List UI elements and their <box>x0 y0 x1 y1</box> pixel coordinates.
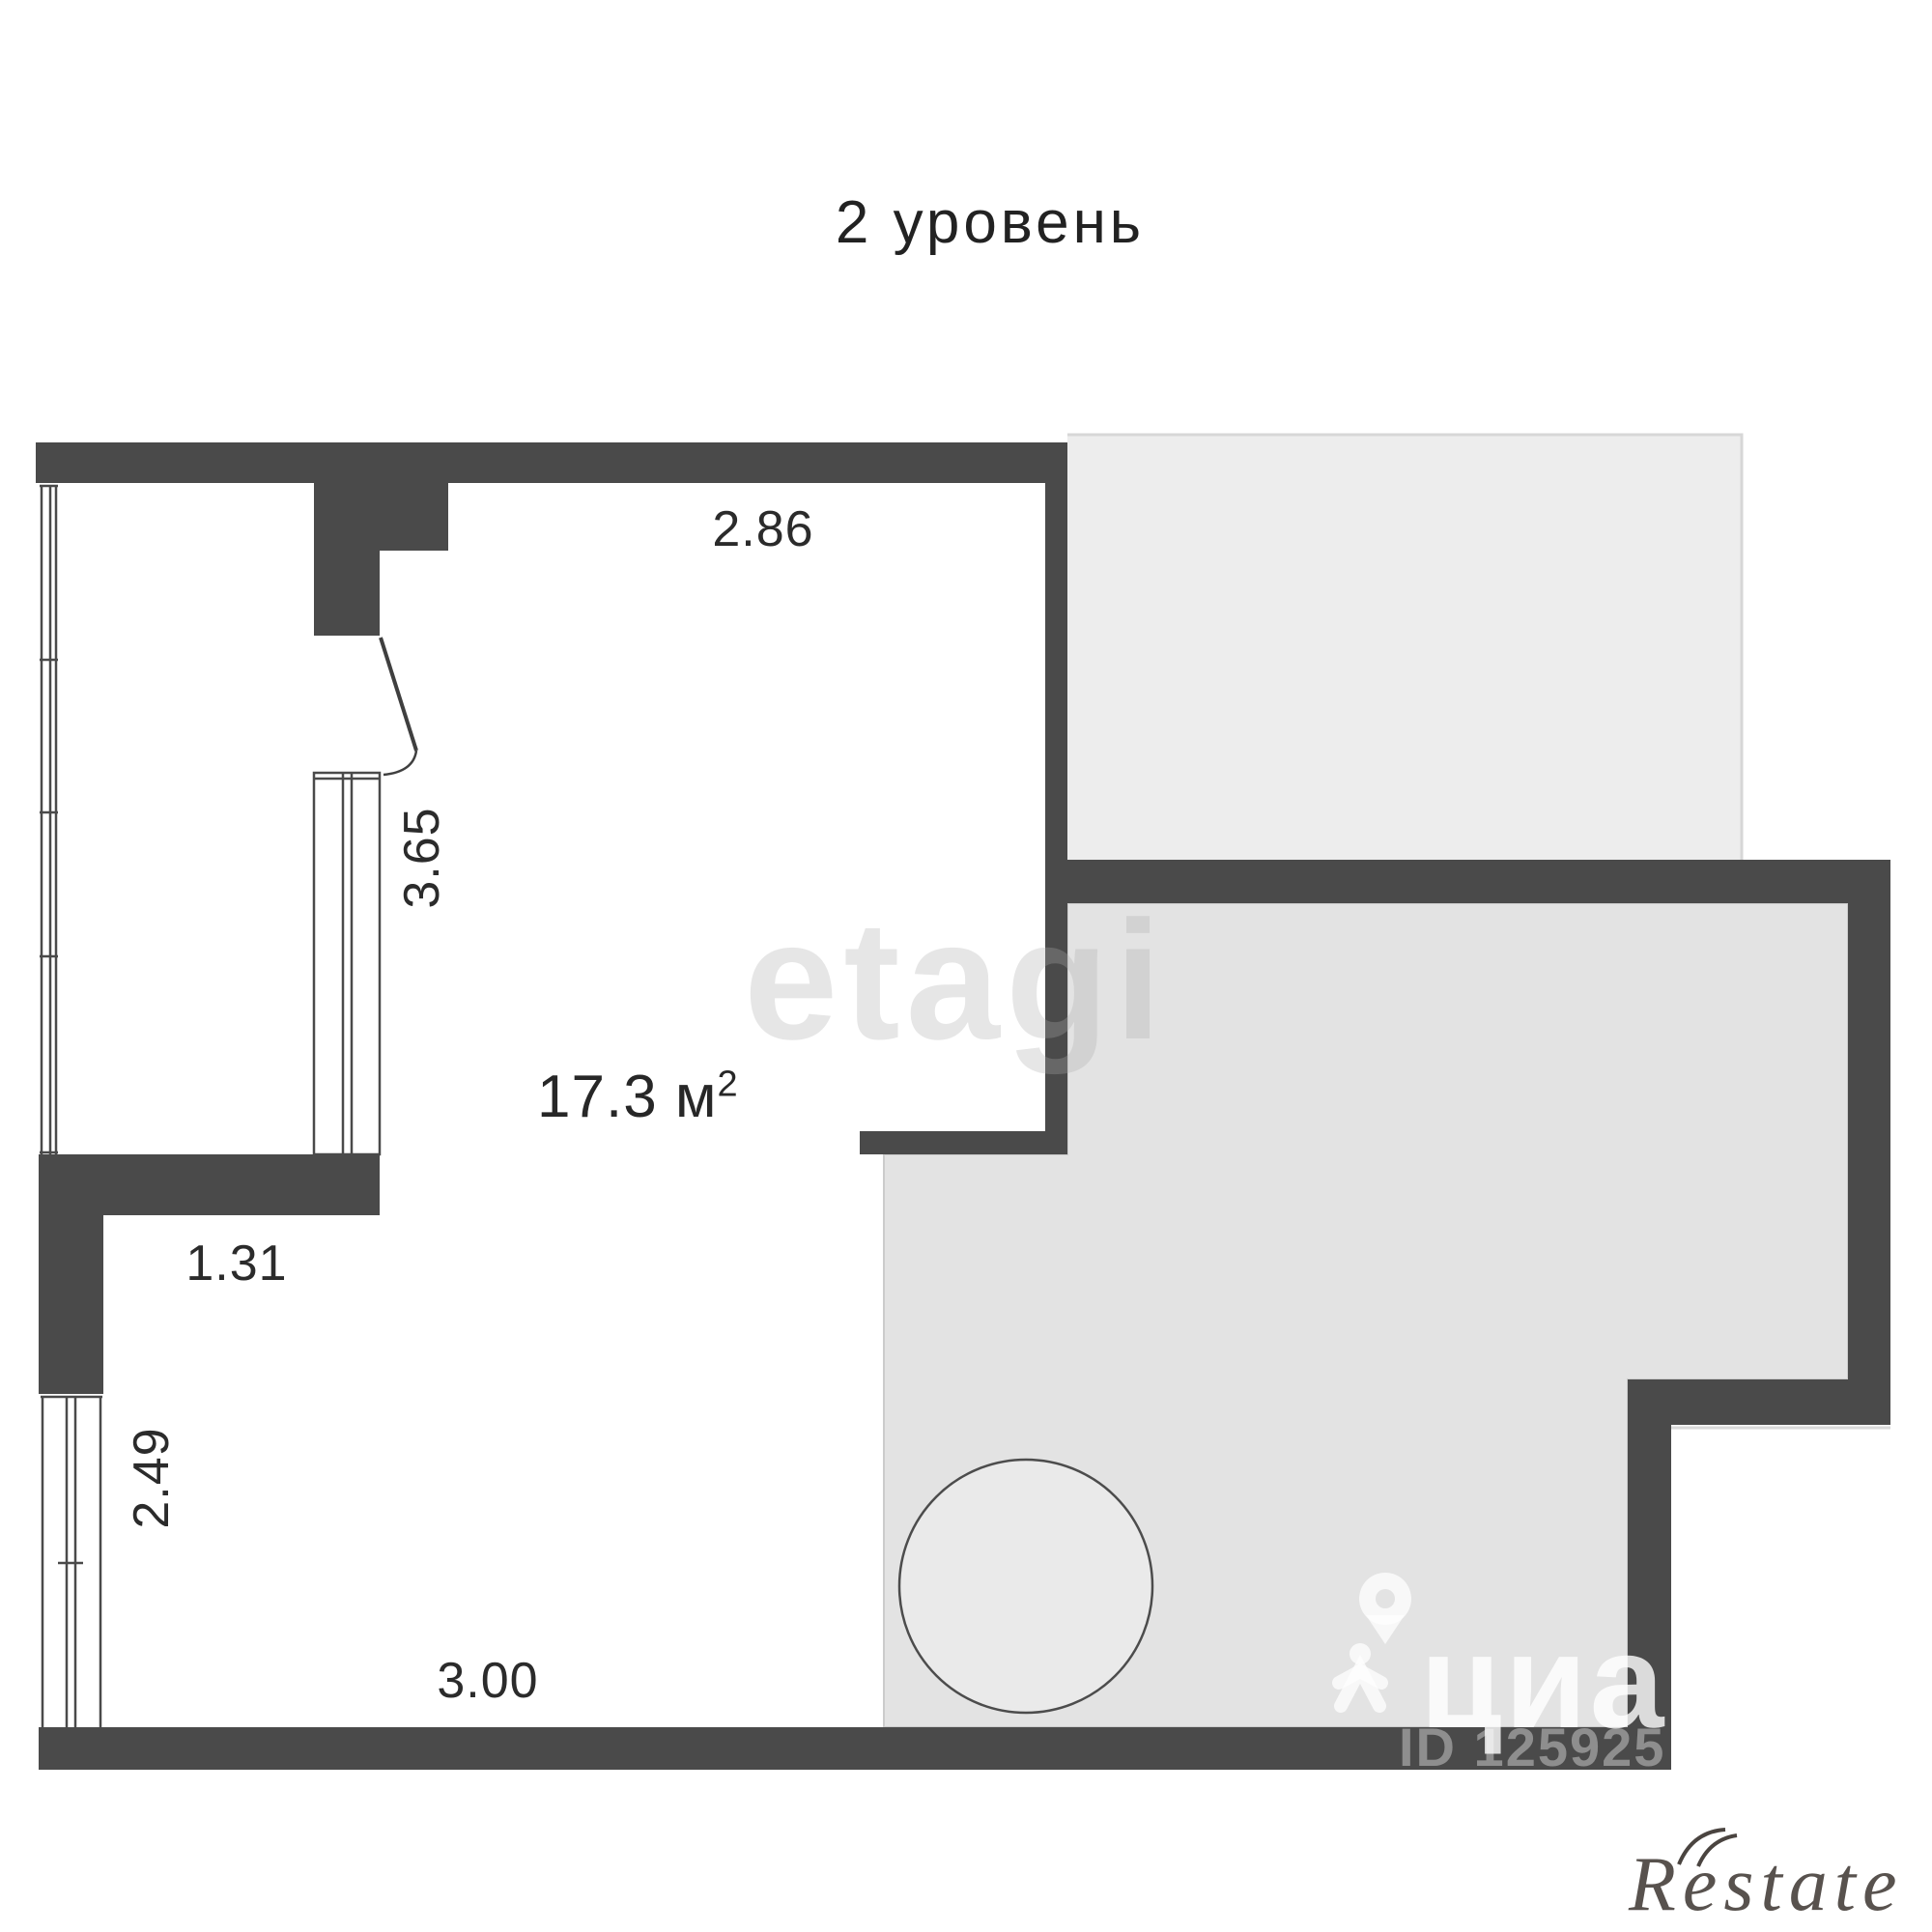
area-power: 2 <box>718 1064 739 1104</box>
area-unit: м <box>675 1064 718 1130</box>
wall-room-bottom-band <box>860 1131 1067 1154</box>
wall-door-column-step <box>380 483 448 551</box>
dimension-window-left: 3.65 <box>393 805 451 911</box>
dimension-top-wall: 2.86 <box>710 500 816 558</box>
wall-ledge-band <box>39 1154 380 1215</box>
window-left-lower <box>41 1396 102 1727</box>
floorplan-page: 2 уровень 2.86 3.65 1.31 2.49 3.00 17.3 … <box>0 0 1932 1932</box>
wall-step-band <box>1628 1379 1890 1425</box>
watermark-listing-id: ID 125925 <box>1399 1716 1675 1778</box>
room-area-label: 17.3 м2 <box>537 1063 739 1131</box>
wall-door-column <box>314 483 380 636</box>
page-title: 2 уровень <box>816 188 1164 257</box>
window-interior <box>314 773 380 1154</box>
area-value: 17.3 <box>537 1064 658 1130</box>
neighbor-area-upper <box>1067 435 1742 860</box>
dimension-ledge: 1.31 <box>184 1235 290 1293</box>
watermark-etagi: etagi <box>744 884 1167 1078</box>
door-symbol <box>381 638 416 775</box>
stair-circle-symbol <box>899 1460 1152 1713</box>
wall-right <box>1848 860 1890 1425</box>
wall-left-lower <box>39 1215 103 1394</box>
dimension-bottom-wall: 3.00 <box>435 1652 541 1710</box>
watermark-restate: Restate <box>1629 1841 1903 1929</box>
dimension-window-lower-left: 2.49 <box>123 1425 181 1531</box>
wall-mid-band <box>1045 860 1890 903</box>
wall-top <box>36 442 1067 483</box>
window-left-upper <box>40 485 58 1154</box>
